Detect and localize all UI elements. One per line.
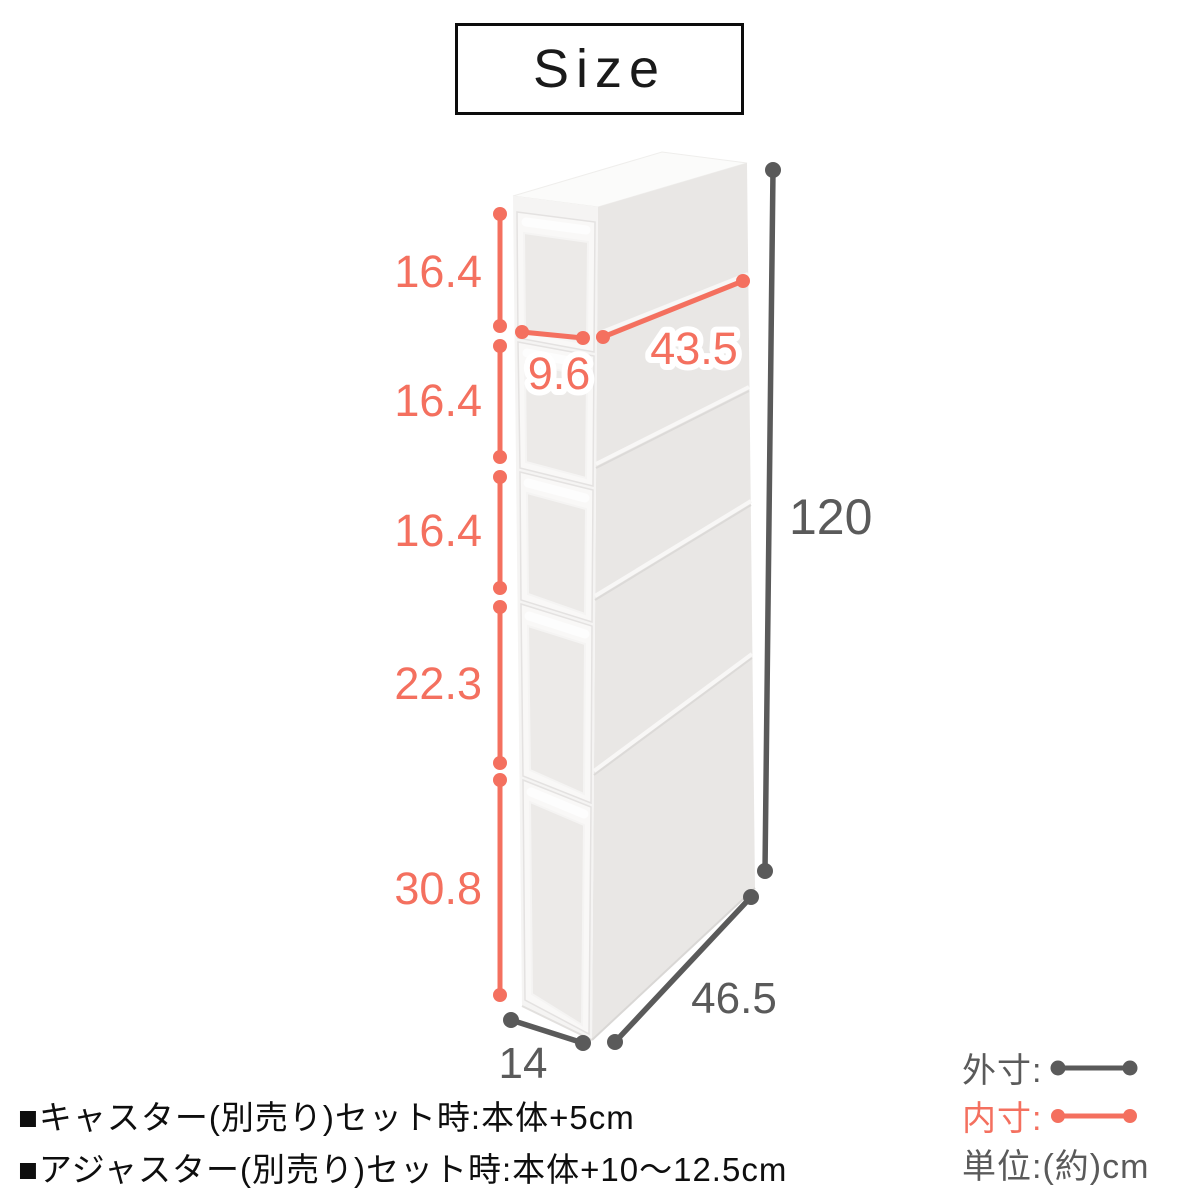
legend-inner-label: 内寸: xyxy=(962,1091,1042,1140)
footnotes: ■キャスター(別売り)セット時:本体+5cm ■アジャスター(別売り)セット時:… xyxy=(18,1100,787,1204)
outer-height-dim-line xyxy=(757,162,781,879)
legend-unit-label: 単位:(約)cm xyxy=(962,1139,1149,1188)
drawer-front xyxy=(520,472,593,622)
inner-height-dim-line-4 xyxy=(493,600,507,770)
inner-height-label-3: 16.4 xyxy=(394,505,482,556)
inner-height-dim-line-1 xyxy=(493,207,507,333)
inner-depth-label: 43.5 xyxy=(650,323,738,374)
inner-line-sample-icon xyxy=(1048,1105,1140,1127)
drawer-front xyxy=(521,604,592,803)
outer-depth-label: 46.5 xyxy=(691,974,777,1023)
cabinet-illustration xyxy=(513,152,755,1040)
inner-height-label-4: 22.3 xyxy=(394,658,482,709)
legend-inner-row: 内寸: xyxy=(962,1096,1149,1135)
note-adjuster: ■アジャスター(別売り)セット時:本体+10〜12.5cm xyxy=(18,1152,787,1188)
legend: 外寸: 内寸: 単位:(約)cm xyxy=(962,1048,1149,1183)
inner-width-label: 9.6 xyxy=(528,348,591,399)
outer-line-sample-icon xyxy=(1048,1057,1140,1079)
note-caster: ■キャスター(別売り)セット時:本体+5cm xyxy=(18,1100,787,1136)
dimension-diagram: 16.4 16.4 16.4 22.3 30.8 9.6 43.5 120 46… xyxy=(0,0,1200,1200)
inner-height-dim-line-5 xyxy=(493,773,507,1002)
inner-height-dim-line-2 xyxy=(493,339,507,464)
inner-height-dim-line-3 xyxy=(493,470,507,595)
outer-height-label: 120 xyxy=(789,489,872,545)
inner-height-label-1: 16.4 xyxy=(394,246,482,297)
drawer-front xyxy=(523,780,591,1034)
legend-outer-label: 外寸: xyxy=(962,1043,1042,1092)
legend-outer-row: 外寸: xyxy=(962,1048,1149,1087)
outer-width-label: 14 xyxy=(499,1039,548,1088)
inner-height-label-5: 30.8 xyxy=(394,863,482,914)
inner-height-label-2: 16.4 xyxy=(394,375,482,426)
legend-unit-row: 単位:(約)cm xyxy=(962,1144,1149,1183)
cabinet-side-face xyxy=(592,163,755,1040)
